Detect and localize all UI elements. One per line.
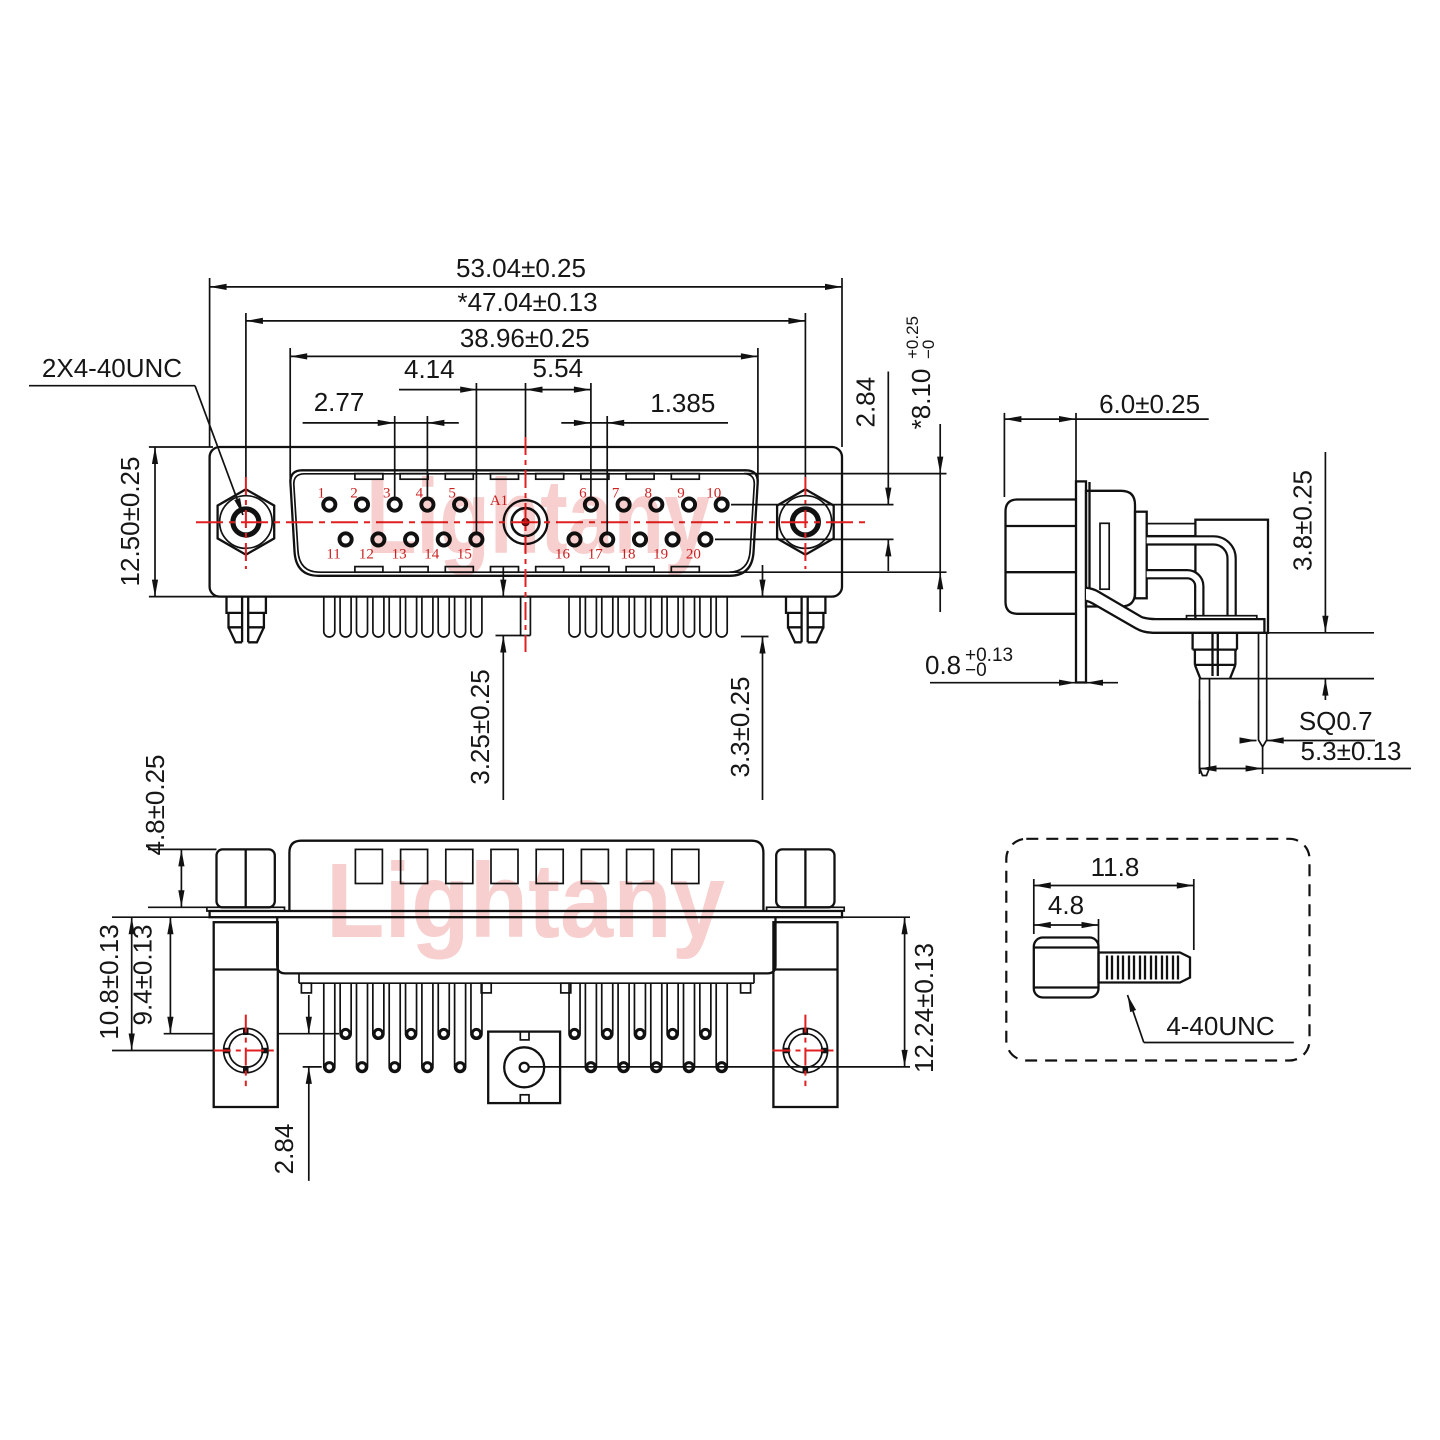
svg-text:12.24±0.13: 12.24±0.13 — [909, 943, 939, 1073]
svg-text:1: 1 — [318, 486, 326, 502]
svg-text:2.77: 2.77 — [314, 387, 365, 417]
svg-text:4-40UNC: 4-40UNC — [1166, 1011, 1274, 1041]
svg-text:11: 11 — [326, 547, 340, 563]
svg-text:4.8±0.25: 4.8±0.25 — [140, 754, 170, 855]
svg-text:10.8±0.13: 10.8±0.13 — [94, 924, 124, 1039]
svg-text:2X4-40UNC: 2X4-40UNC — [42, 353, 182, 383]
svg-text:3.3±0.25: 3.3±0.25 — [725, 676, 755, 777]
svg-text:9.4±0.13: 9.4±0.13 — [128, 924, 158, 1025]
svg-text:Lightany: Lightany — [326, 842, 725, 960]
svg-text:−0: −0 — [919, 340, 938, 359]
svg-text:2.84: 2.84 — [269, 1124, 299, 1175]
svg-text:6.0±0.25: 6.0±0.25 — [1099, 389, 1200, 419]
svg-text:12.50±0.25: 12.50±0.25 — [115, 457, 145, 587]
svg-text:SQ0.7: SQ0.7 — [1299, 706, 1373, 736]
svg-text:11.8: 11.8 — [1091, 852, 1140, 882]
svg-text:5.54: 5.54 — [532, 353, 583, 383]
svg-text:4.8: 4.8 — [1048, 890, 1084, 920]
svg-text:2.84: 2.84 — [850, 377, 880, 428]
svg-text:5.3±0.13: 5.3±0.13 — [1300, 736, 1401, 766]
svg-text:−0: −0 — [965, 660, 987, 681]
svg-text:4.14: 4.14 — [404, 354, 455, 384]
svg-text:*8.10: *8.10 — [906, 369, 936, 430]
svg-text:*47.04±0.13: *47.04±0.13 — [457, 287, 597, 317]
svg-text:3.25±0.25: 3.25±0.25 — [465, 669, 495, 784]
svg-text:0.8: 0.8 — [925, 650, 961, 680]
svg-text:3.8±0.25: 3.8±0.25 — [1288, 470, 1318, 571]
svg-text:1.385: 1.385 — [650, 388, 715, 418]
svg-text:53.04±0.25: 53.04±0.25 — [456, 253, 586, 283]
svg-text:2: 2 — [350, 486, 358, 502]
svg-text:38.96±0.25: 38.96±0.25 — [460, 323, 590, 353]
svg-text:Lightany: Lightany — [366, 458, 710, 576]
